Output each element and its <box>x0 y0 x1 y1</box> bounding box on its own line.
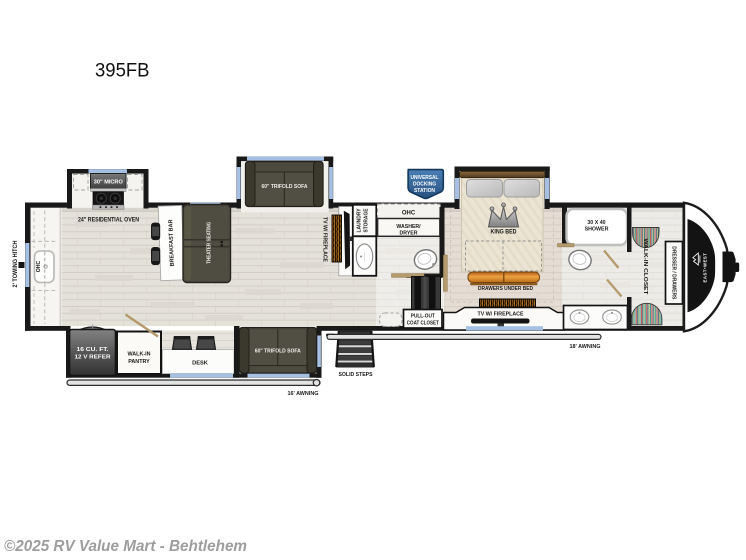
svg-text:DOCKING: DOCKING <box>413 182 436 188</box>
svg-text:60" TRIFOLD SOFA: 60" TRIFOLD SOFA <box>255 349 302 355</box>
svg-text:COAT CLOSET: COAT CLOSET <box>407 321 440 327</box>
svg-text:KING BED: KING BED <box>491 230 518 236</box>
svg-text:WASHER/: WASHER/ <box>396 224 421 230</box>
svg-text:PANTRY: PANTRY <box>128 359 150 365</box>
svg-text:OHC: OHC <box>402 211 416 217</box>
svg-text:STORAGE: STORAGE <box>363 208 369 233</box>
svg-text:SOLID STEPS: SOLID STEPS <box>339 372 373 378</box>
svg-text:DRYER: DRYER <box>400 230 418 236</box>
svg-text:LAUNDRY: LAUNDRY <box>357 208 363 233</box>
svg-text:DRAWERS UNDER BED: DRAWERS UNDER BED <box>478 286 533 292</box>
svg-text:OHC: OHC <box>36 260 42 272</box>
svg-text:30 X 40: 30 X 40 <box>587 220 605 226</box>
svg-text:WALK-IN CLOSET: WALK-IN CLOSET <box>642 239 648 296</box>
svg-text:EAST•WEST: EAST•WEST <box>702 253 707 283</box>
svg-text:395FB: 395FB <box>95 61 150 82</box>
svg-text:TV W/ FIREPLACE: TV W/ FIREPLACE <box>322 217 328 262</box>
svg-text:12 V REFER: 12 V REFER <box>75 355 111 361</box>
svg-text:WALK-IN: WALK-IN <box>127 351 150 357</box>
svg-text:SHOWER: SHOWER <box>585 227 609 233</box>
svg-text:60" TRIFOLD SOFA: 60" TRIFOLD SOFA <box>262 184 309 190</box>
svg-text:16 CU. FT.: 16 CU. FT. <box>77 347 110 353</box>
svg-text:DESK: DESK <box>192 361 209 367</box>
svg-text:24" RESIDENTIAL OVEN: 24" RESIDENTIAL OVEN <box>78 216 139 223</box>
svg-text:UNIVERSAL: UNIVERSAL <box>411 175 440 181</box>
svg-text:©2025 RV Value Mart - Behtlehe: ©2025 RV Value Mart - Behtlehem <box>4 538 247 555</box>
svg-text:THEATER SEATING: THEATER SEATING <box>207 222 213 264</box>
svg-text:18' AWNING: 18' AWNING <box>570 344 602 350</box>
svg-text:16' AWNING: 16' AWNING <box>288 391 320 397</box>
svg-text:DRESSER / DRAWERS: DRESSER / DRAWERS <box>671 246 677 300</box>
svg-text:2' TOWING HITCH: 2' TOWING HITCH <box>13 241 19 288</box>
svg-text:TV W/ FIREPLACE: TV W/ FIREPLACE <box>478 312 524 318</box>
svg-text:PULL-OUT: PULL-OUT <box>411 314 436 320</box>
svg-text:30" MICRO: 30" MICRO <box>94 180 124 186</box>
svg-text:STATION: STATION <box>414 188 435 194</box>
